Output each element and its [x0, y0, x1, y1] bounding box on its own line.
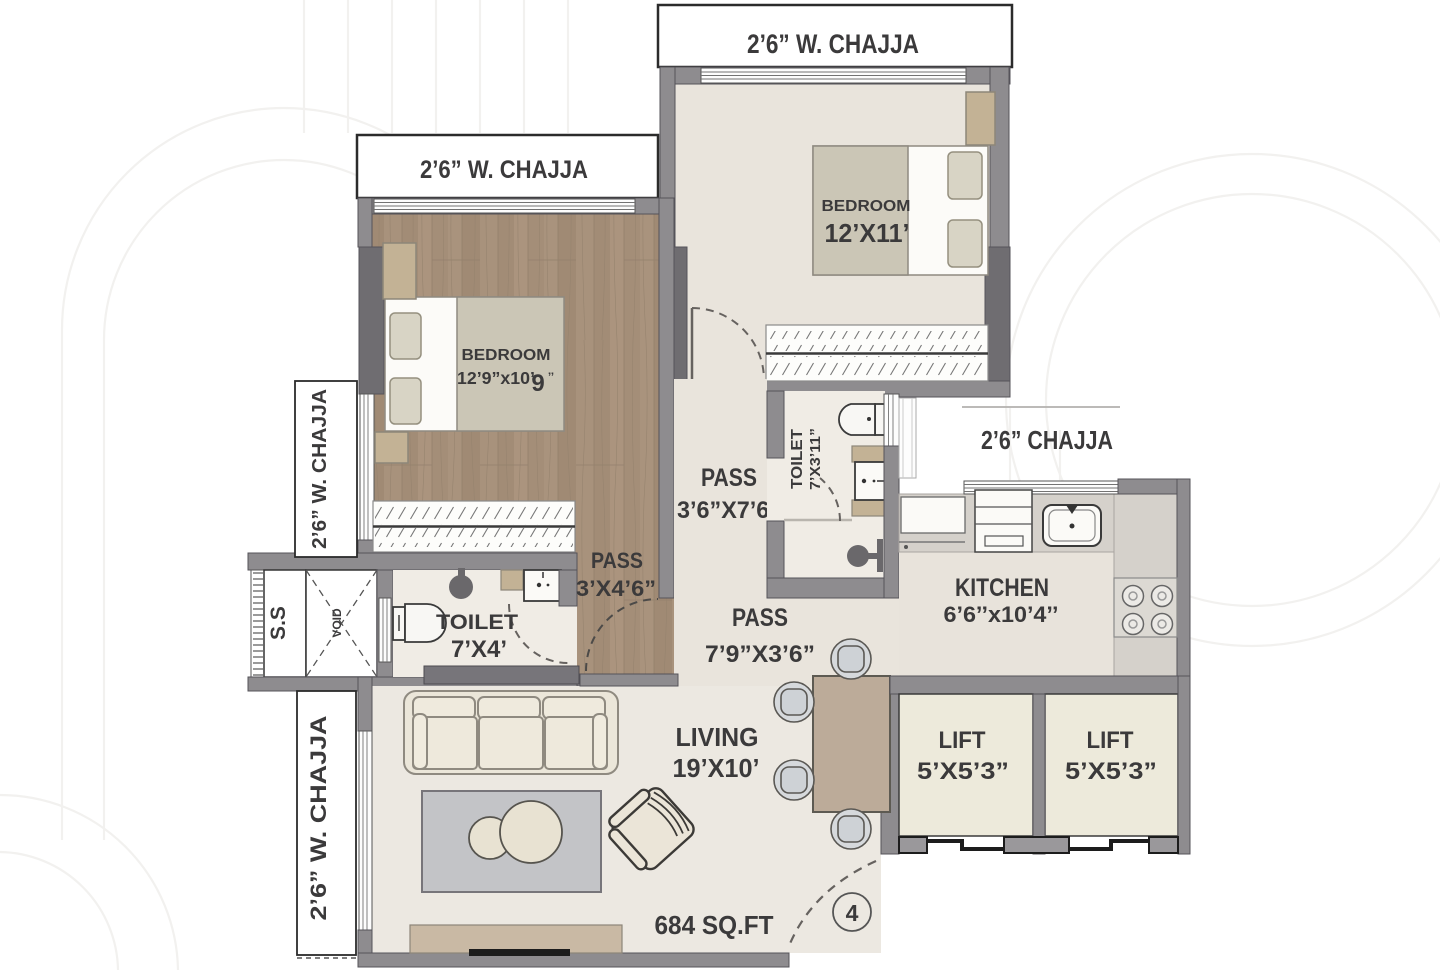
svg-text:’’: ’’ [548, 370, 554, 384]
svg-text:7’X3’11”: 7’X3’11” [807, 428, 824, 490]
svg-text:9: 9 [531, 370, 544, 397]
svg-text:5’X5’3”: 5’X5’3” [1065, 758, 1157, 785]
svg-text:3’X4’6”: 3’X4’6” [576, 576, 656, 601]
svg-text:PASS: PASS [591, 548, 643, 573]
svg-text:5’X5’3”: 5’X5’3” [917, 758, 1009, 785]
svg-text:LIFT: LIFT [1087, 727, 1134, 754]
svg-text:S.S: S.S [267, 606, 290, 640]
svg-text:VOID: VOID [330, 608, 344, 638]
svg-text:PASS: PASS [701, 464, 757, 492]
svg-text:2’6” W. CHAJJA: 2’6” W. CHAJJA [747, 29, 919, 59]
svg-text:LIVING: LIVING [676, 722, 759, 752]
svg-text:BEDROOM: BEDROOM [822, 198, 911, 215]
svg-text:12’9”x10’: 12’9”x10’ [457, 368, 535, 388]
svg-text:TOILET: TOILET [436, 611, 518, 634]
svg-text:KITCHEN: KITCHEN [955, 574, 1049, 602]
svg-text:4: 4 [846, 900, 859, 926]
svg-text:2’6” W. CHAJJA: 2’6” W. CHAJJA [309, 389, 331, 549]
svg-text:BEDROOM: BEDROOM [462, 347, 551, 364]
svg-text:TOILET: TOILET [789, 429, 806, 489]
svg-text:684 SQ.FT: 684 SQ.FT [655, 910, 774, 940]
svg-text:2’6” W. CHAJJA: 2’6” W. CHAJJA [306, 715, 331, 920]
svg-text:19’X10’: 19’X10’ [673, 753, 760, 783]
svg-text:3’6”X7’6”: 3’6”X7’6” [677, 497, 781, 524]
svg-text:7’X4’: 7’X4’ [451, 636, 507, 663]
svg-text:7’9”X3’6”: 7’9”X3’6” [705, 641, 815, 668]
svg-text:2’6” CHAJJA: 2’6” CHAJJA [981, 425, 1113, 455]
svg-text:6’6’’x10’4’’: 6’6’’x10’4’’ [944, 602, 1059, 627]
svg-text:LIFT: LIFT [939, 727, 986, 754]
svg-text:2’6” W. CHAJJA: 2’6” W. CHAJJA [420, 156, 588, 184]
svg-text:12’X11’: 12’X11’ [825, 218, 910, 248]
svg-text:PASS: PASS [732, 604, 788, 632]
